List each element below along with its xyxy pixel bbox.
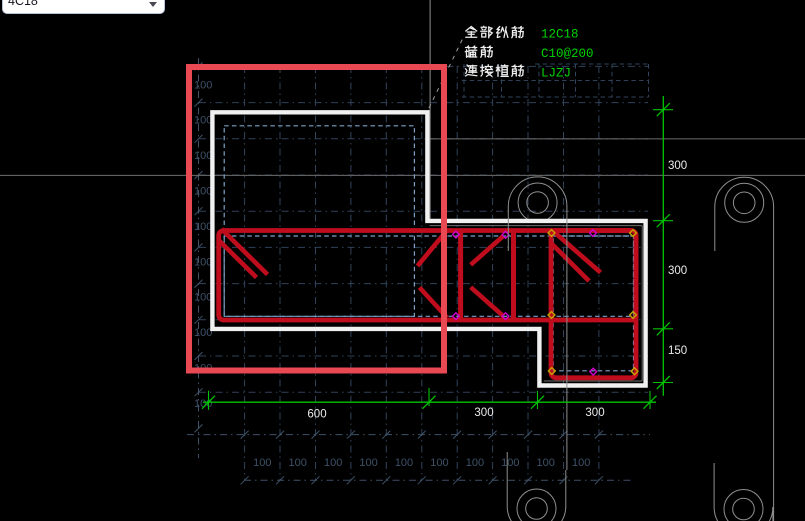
svg-text:100: 100 [572,457,590,469]
svg-text:100: 100 [253,457,271,469]
svg-text:100: 100 [194,292,212,304]
svg-text:150: 150 [668,345,687,357]
svg-text:100: 100 [359,457,377,469]
svg-text:12C18: 12C18 [541,28,579,42]
svg-text:600: 600 [307,409,326,421]
svg-text:100: 100 [395,457,413,469]
svg-text:100: 100 [194,115,212,127]
svg-text:LJZJ: LJZJ [541,67,571,81]
svg-text:100: 100 [289,457,307,469]
svg-text:300: 300 [474,407,493,419]
svg-text:100: 100 [537,457,555,469]
svg-text:100: 100 [194,221,212,233]
svg-text:100: 100 [194,327,212,339]
svg-text:100: 100 [466,457,484,469]
svg-text:100: 100 [430,457,448,469]
svg-text:100: 100 [324,457,342,469]
svg-text:100: 100 [194,150,212,162]
svg-text:300: 300 [668,265,687,277]
svg-text:300: 300 [585,407,604,419]
svg-text:100: 100 [194,256,212,268]
svg-text:C10@200: C10@200 [541,47,594,61]
svg-text:300: 300 [668,160,687,172]
svg-text:100: 100 [194,79,212,91]
svg-text:100: 100 [194,186,212,198]
svg-text:100: 100 [501,457,519,469]
